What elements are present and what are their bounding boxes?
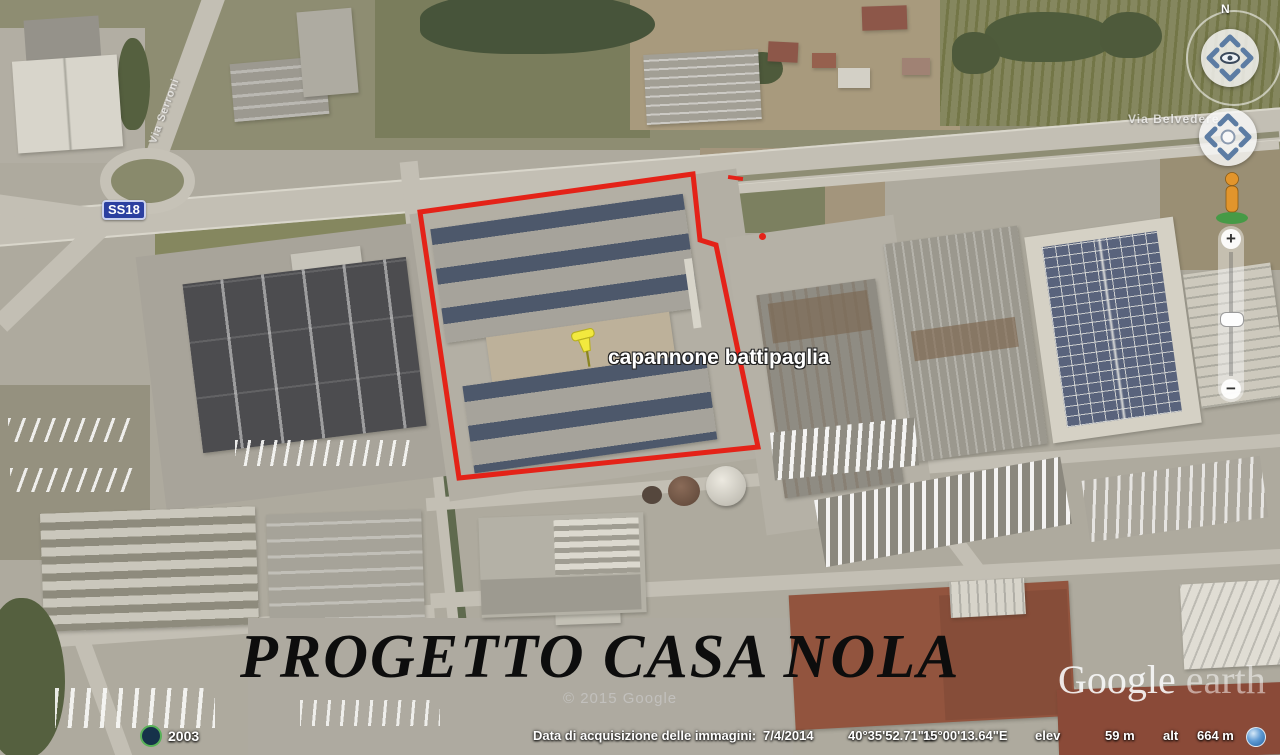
- copyright-watermark: © 2015 Google: [563, 690, 677, 707]
- imagery-date-value: 7/4/2014: [763, 728, 814, 748]
- move-joystick[interactable]: [1199, 108, 1257, 166]
- red-dot-mark: [759, 233, 766, 240]
- look-joystick-arrows: [1201, 29, 1259, 87]
- look-joystick[interactable]: [1201, 29, 1259, 87]
- project-title: PROGETTO CASA NOLA: [240, 622, 980, 693]
- placemark-label: capannone battipaglia: [608, 346, 830, 370]
- north-indicator[interactable]: N: [1221, 2, 1230, 16]
- zoom-in-button[interactable]: +: [1221, 229, 1241, 249]
- google-earth-watermark: Google earth: [1058, 656, 1266, 703]
- history-year[interactable]: 2003: [168, 728, 199, 748]
- elevation-value: 59 m: [1105, 728, 1135, 748]
- zoom-out-button[interactable]: −: [1221, 379, 1241, 399]
- zoom-slider-handle[interactable]: [1220, 312, 1244, 327]
- google-earth-viewport[interactable]: capannone battipaglia SS18 Via Serroni V…: [0, 0, 1280, 755]
- latitude-value: 40°35'52.71"N: [848, 728, 933, 748]
- pegman-street-view[interactable]: [1212, 166, 1252, 226]
- imagery-date-label: Data di acquisizione delle immagini:: [533, 728, 756, 748]
- altitude-label: alt: [1163, 728, 1178, 748]
- zoom-slider[interactable]: + −: [1218, 226, 1244, 402]
- longitude-value: 15°00'13.64"E: [923, 728, 1008, 748]
- move-joystick-arrows: [1199, 108, 1257, 166]
- elevation-label: elev: [1035, 728, 1060, 748]
- eye-altitude-icon: [1246, 727, 1266, 747]
- watermark-google: Google: [1058, 657, 1176, 702]
- altitude-value: 664 m: [1197, 728, 1234, 748]
- placemark-pin-icon[interactable]: [570, 328, 604, 374]
- watermark-earth: earth: [1176, 657, 1266, 702]
- history-clock-icon[interactable]: [140, 725, 162, 747]
